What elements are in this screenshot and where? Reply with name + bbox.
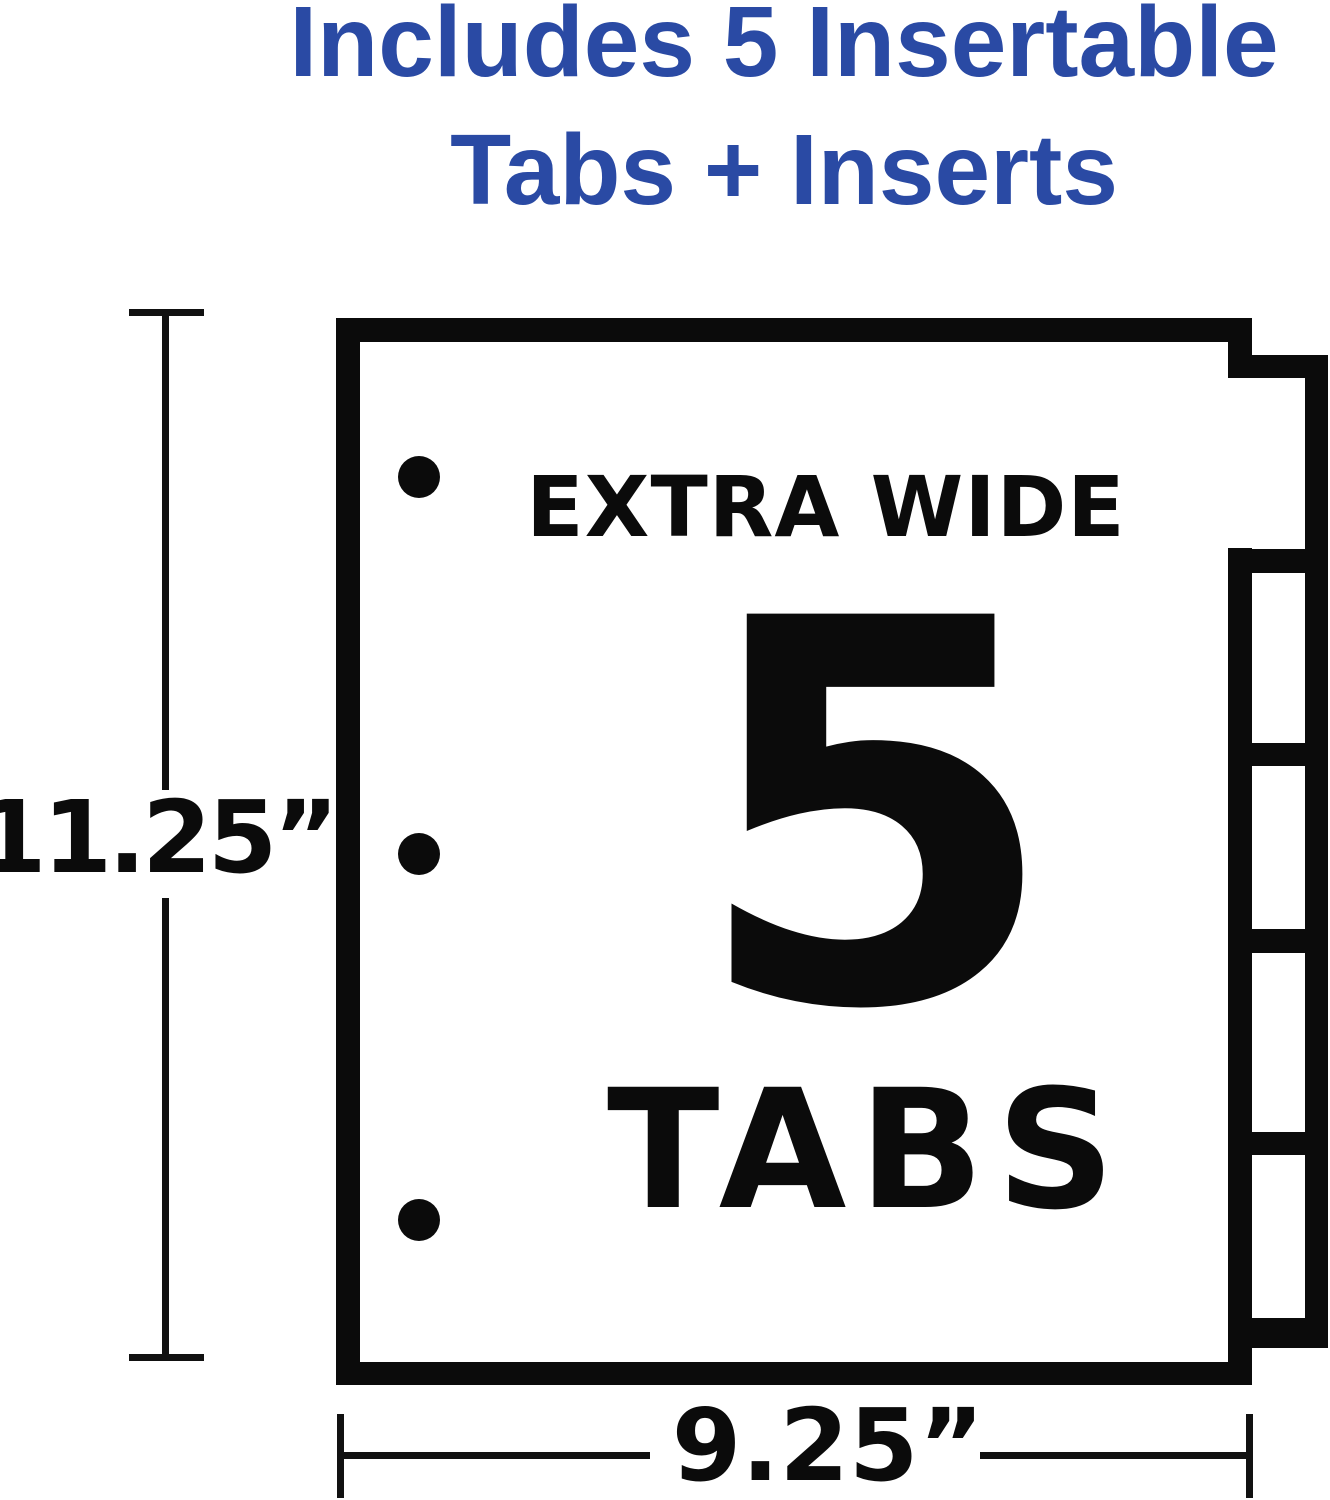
width-dimension-value: 9.25” [628, 1391, 1028, 1500]
binder-hole-top [398, 456, 440, 498]
binder-hole-bottom [398, 1199, 440, 1241]
tab-4-5-separator [1252, 1132, 1328, 1155]
width-dimension-tick-right [1246, 1414, 1253, 1498]
tab-2-3-separator [1252, 743, 1328, 766]
tabs-label: TABS [567, 1068, 1167, 1233]
headline-line-2: Tabs + Inserts [234, 106, 1330, 234]
binder-hole-middle [398, 833, 440, 875]
tab-1-2-separator [1228, 549, 1328, 573]
height-dimension-tick-bottom [129, 1354, 204, 1361]
sheet-right-edge [1228, 548, 1252, 1385]
tabs-outer-edge [1305, 355, 1328, 1348]
sheet-top-edge [336, 318, 1252, 342]
width-dimension-tick-left [337, 1414, 344, 1498]
sheet-bottom-edge [336, 1362, 1252, 1385]
headline: Includes 5 Insertable Tabs + Inserts [234, 0, 1330, 234]
height-dimension-tick-top [129, 309, 204, 316]
tab-count-number: 5 [575, 552, 1175, 1082]
headline-line-1: Includes 5 Insertable [234, 0, 1330, 106]
height-dimension-line-lower [162, 898, 169, 1360]
height-dimension-value: 11.25” [0, 783, 356, 893]
product-diagram-image: Includes 5 Insertable Tabs + Inserts EXT… [0, 0, 1330, 1500]
tab-3-4-separator [1252, 929, 1328, 953]
width-dimension-line-left [337, 1452, 650, 1459]
tab-5-bottom-edge [1247, 1318, 1328, 1348]
height-dimension-line-upper [162, 312, 169, 790]
